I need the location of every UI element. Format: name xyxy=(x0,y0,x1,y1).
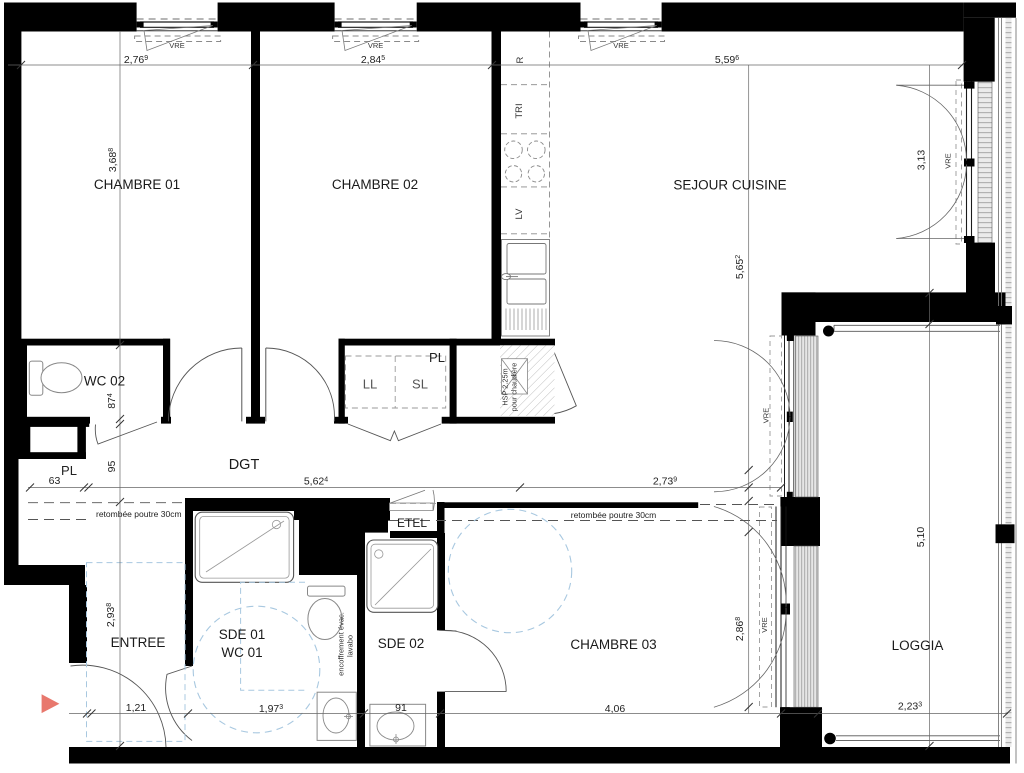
svg-text:SL: SL xyxy=(412,377,428,392)
svg-text:ENTREE: ENTREE xyxy=(111,635,166,650)
svg-text:VRE: VRE xyxy=(368,41,383,50)
svg-text:VRE: VRE xyxy=(169,41,184,50)
svg-text:SDE 01: SDE 01 xyxy=(219,627,266,642)
svg-text:LL: LL xyxy=(363,377,377,392)
svg-text:HSP 2.25m: HSP 2.25m xyxy=(501,368,510,405)
svg-text:LOGGIA: LOGGIA xyxy=(892,638,944,653)
svg-text:VRE: VRE xyxy=(613,41,628,50)
svg-text:pour chaudière: pour chaudière xyxy=(510,363,519,412)
svg-text:5,10: 5,10 xyxy=(915,527,927,548)
svg-text:CHAMBRE 02: CHAMBRE 02 xyxy=(332,177,418,192)
svg-text:WC 02: WC 02 xyxy=(84,374,125,389)
svg-text:retombée poutre 30cm: retombée poutre 30cm xyxy=(571,510,657,520)
svg-text:ETEL: ETEL xyxy=(397,516,427,530)
svg-text:VRE: VRE xyxy=(760,617,769,632)
svg-text:CHAMBRE 01: CHAMBRE 01 xyxy=(94,177,180,192)
svg-text:SEJOUR CUISINE: SEJOUR CUISINE xyxy=(673,178,786,193)
svg-text:DGT: DGT xyxy=(229,457,260,473)
svg-text:LV: LV xyxy=(514,208,525,220)
svg-text:CHAMBRE 03: CHAMBRE 03 xyxy=(570,637,656,652)
svg-text:WC 01: WC 01 xyxy=(221,645,262,660)
svg-text:R: R xyxy=(515,56,526,63)
svg-text:95: 95 xyxy=(106,461,118,473)
svg-text:encoffrement évac.: encoffrement évac. xyxy=(337,612,346,676)
svg-text:lavabo: lavabo xyxy=(346,635,355,657)
svg-text:63: 63 xyxy=(49,475,61,487)
svg-text:retombée poutre 30cm: retombée poutre 30cm xyxy=(96,509,182,519)
svg-text:VRE: VRE xyxy=(944,153,953,168)
svg-text:PL: PL xyxy=(61,463,77,478)
svg-text:1,21: 1,21 xyxy=(126,702,147,714)
svg-text:91: 91 xyxy=(395,702,407,714)
svg-text:4,06: 4,06 xyxy=(605,703,626,715)
svg-text:PL: PL xyxy=(429,350,445,365)
svg-text:3,13: 3,13 xyxy=(916,150,928,171)
svg-text:SDE 02: SDE 02 xyxy=(378,636,425,651)
svg-text:VRE: VRE xyxy=(762,408,771,423)
svg-text:TRI: TRI xyxy=(514,103,525,118)
